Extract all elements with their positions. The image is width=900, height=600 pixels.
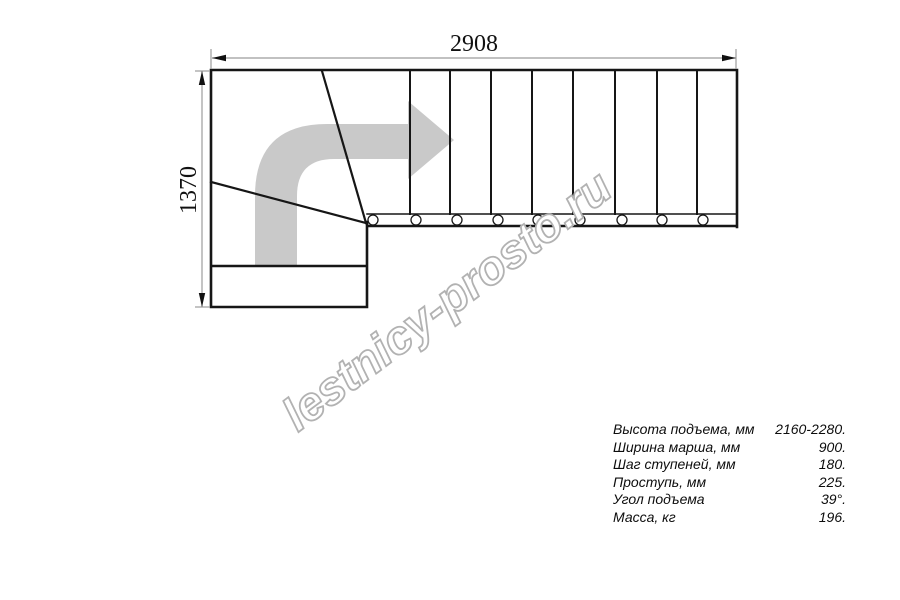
spec-value: 2160-2280. bbox=[775, 421, 846, 439]
baluster-circle bbox=[411, 215, 421, 225]
stair-drawing-page: 2908 1370 lestnicy-prosto.ru Высота подъ… bbox=[0, 0, 900, 600]
spec-value: 180. bbox=[819, 456, 846, 474]
dimension-arrowhead-right bbox=[722, 55, 736, 61]
spec-value: 225. bbox=[819, 474, 846, 492]
spec-row: Масса, кг 196. bbox=[613, 509, 846, 527]
baluster-circle bbox=[368, 215, 378, 225]
dimension-arrowhead-left bbox=[212, 55, 226, 61]
spec-row: Угол подъема 39°. bbox=[613, 491, 846, 509]
spec-value: 196. bbox=[819, 509, 846, 527]
spec-row: Высота подъема, мм 2160-2280. bbox=[613, 421, 846, 439]
spec-row: Проступь, мм 225. bbox=[613, 474, 846, 492]
baluster-circle bbox=[657, 215, 667, 225]
spec-label: Ширина марша, мм bbox=[613, 439, 740, 457]
width-dimension: 2908 bbox=[211, 31, 736, 69]
width-dimension-label: 2908 bbox=[450, 31, 498, 57]
watermark-text: lestnicy-prosto.ru bbox=[272, 159, 621, 440]
spec-value: 39°. bbox=[821, 491, 846, 509]
spec-label: Масса, кг bbox=[613, 509, 676, 527]
dimension-arrowhead-bottom bbox=[199, 293, 205, 307]
baluster-circle bbox=[493, 215, 503, 225]
baluster-circle bbox=[698, 215, 708, 225]
spec-value: 900. bbox=[819, 439, 846, 457]
height-dimension: 1370 bbox=[176, 71, 210, 307]
dimension-arrowhead-top bbox=[199, 71, 205, 85]
height-dimension-label: 1370 bbox=[176, 166, 202, 214]
baluster-circle bbox=[452, 215, 462, 225]
spec-label: Высота подъема, мм bbox=[613, 421, 755, 439]
specs-table: Высота подъема, мм 2160-2280. Ширина мар… bbox=[613, 421, 846, 526]
spec-label: Шаг ступеней, мм bbox=[613, 456, 736, 474]
spec-row: Шаг ступеней, мм 180. bbox=[613, 456, 846, 474]
spec-label: Проступь, мм bbox=[613, 474, 706, 492]
baluster-circle bbox=[617, 215, 627, 225]
spec-row: Ширина марша, мм 900. bbox=[613, 439, 846, 457]
spec-label: Угол подъема bbox=[613, 491, 705, 509]
